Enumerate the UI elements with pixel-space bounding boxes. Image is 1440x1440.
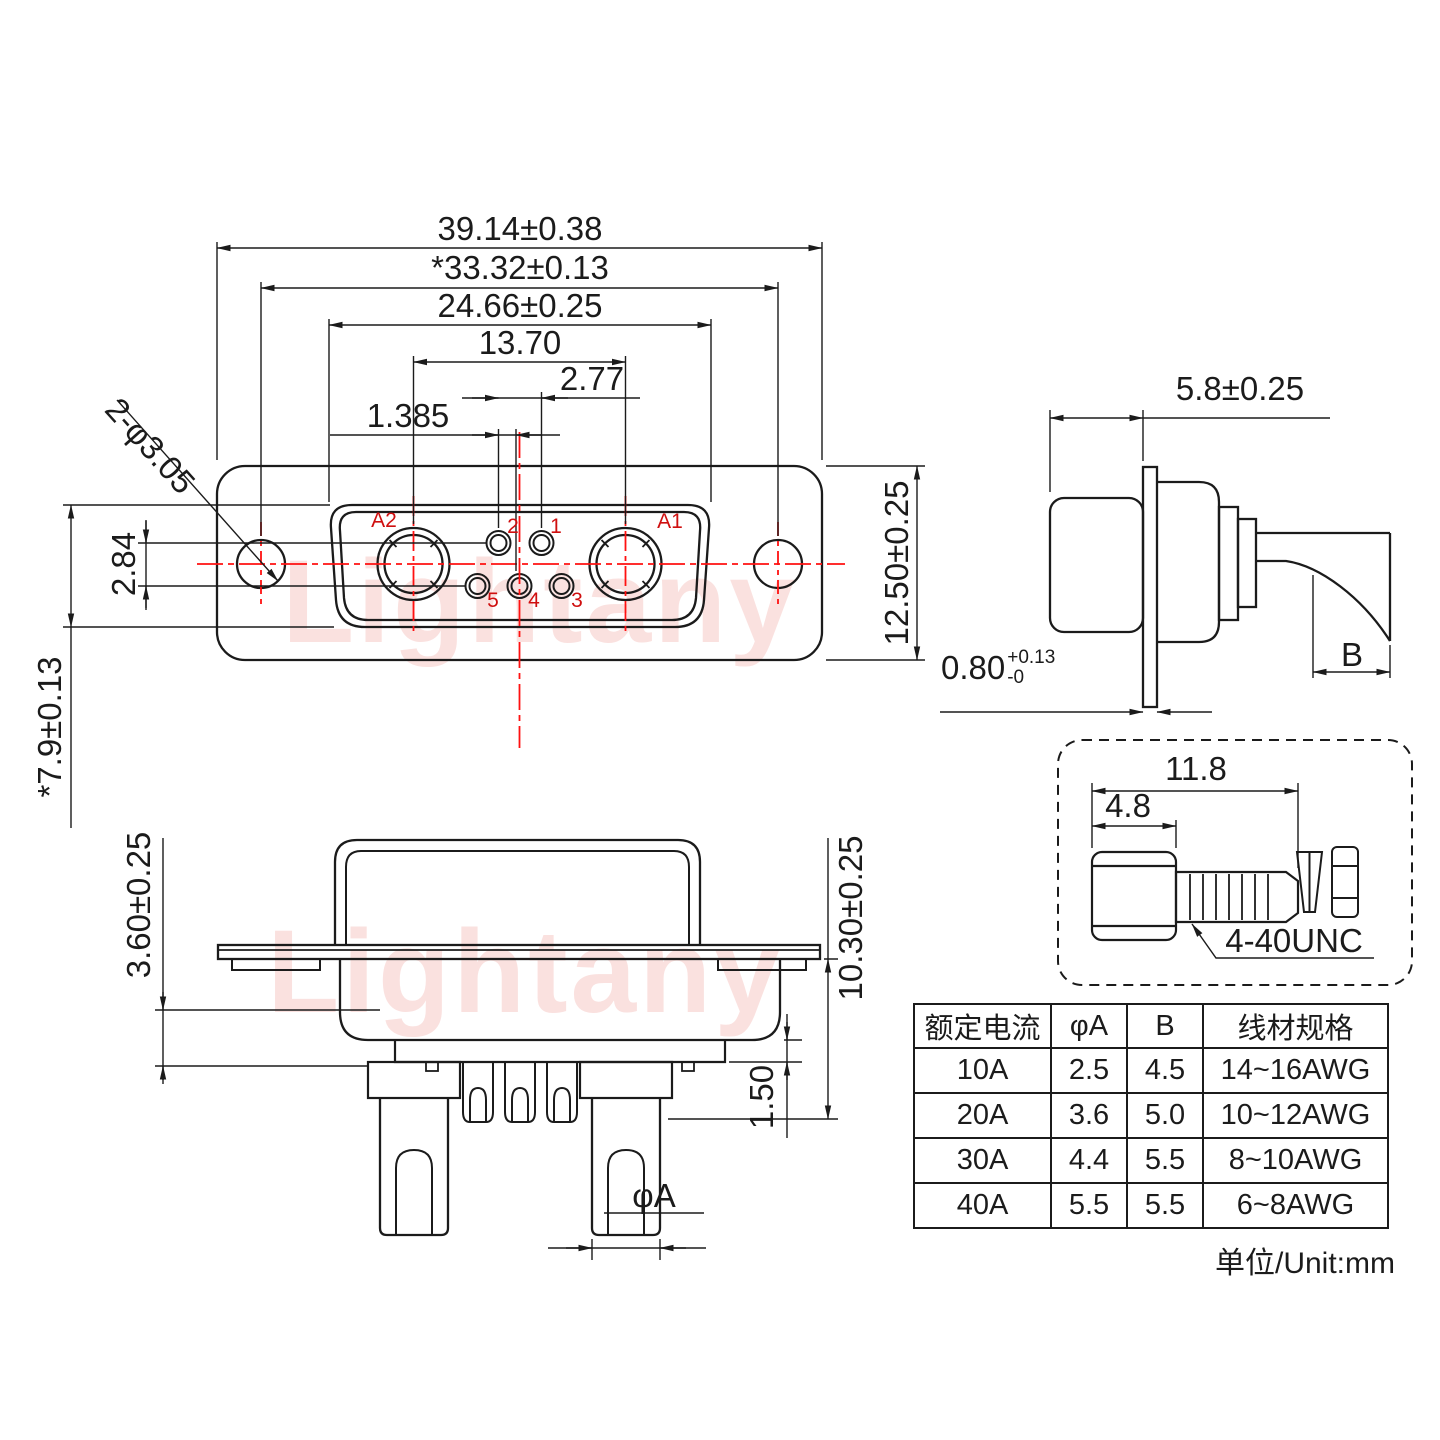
spec-cell: 4.5 (1127, 1048, 1203, 1093)
spec-header-phi-a: φA (1051, 1004, 1127, 1048)
unit-note: 单位/Unit:mm (1100, 1238, 1395, 1282)
pin-label-3: 3 (571, 589, 583, 613)
bottom-insulator-body (340, 959, 780, 1040)
pin-label-a1: A1 (657, 510, 683, 534)
solder-cup-left (368, 1062, 460, 1235)
dim-shell-height: *7.9±0.13 (31, 656, 69, 797)
dim-thread-spec: 4-40UNC (1225, 922, 1363, 960)
lock-wedge-part (1297, 852, 1322, 912)
spec-table-header-row: 额定电流 φA B 线材规格 (914, 1004, 1388, 1048)
spec-cell: 5.5 (1051, 1183, 1127, 1228)
spec-table: 额定电流 φA B 线材规格 10A 2.5 4.5 14~16AWG 20A … (913, 1003, 1389, 1229)
screw-thread-crests (1190, 874, 1268, 920)
front-view-centerlines (197, 432, 845, 748)
spec-cell: 3.6 (1051, 1093, 1127, 1138)
spec-cell: 10A (914, 1048, 1051, 1093)
spec-header-current: 额定电流 (914, 1004, 1051, 1048)
pin-label-5: 5 (487, 589, 499, 613)
side-shell-body (1050, 498, 1143, 632)
spec-header-b: B (1127, 1004, 1203, 1048)
dim-total-depth: 10.30±0.25 (832, 836, 870, 1001)
dim-power-pitch: 13.70 (479, 324, 562, 362)
dim-screw-head-length: 4.8 (1105, 787, 1151, 825)
spec-cell: 5.0 (1127, 1093, 1203, 1138)
bottom-view-dimensions (155, 838, 838, 1260)
side-flange-plate (1143, 467, 1157, 707)
dim-screw-total-length: 11.8 (1165, 750, 1227, 788)
dim-flange-thickness: 0.80 +0.13 -0 (941, 648, 1055, 688)
spec-cell: 4.4 (1051, 1138, 1127, 1183)
bottom-cap-inner (346, 851, 689, 945)
dim-signal-pitch: 2.77 (560, 360, 624, 398)
dim-shell-width: 24.66±0.25 (438, 287, 603, 325)
table-row: 40A 5.5 5.5 6~8AWG (914, 1183, 1388, 1228)
spec-cell: 30A (914, 1138, 1051, 1183)
table-row: 10A 2.5 4.5 14~16AWG (914, 1048, 1388, 1093)
dim-mount-span: *33.32±0.13 (431, 249, 609, 287)
bottom-view-linework (218, 840, 820, 1235)
dim-cup-diameter: φA (632, 1177, 675, 1215)
spec-cell: 40A (914, 1183, 1051, 1228)
bottom-flange-plate (218, 945, 820, 959)
spec-cell: 20A (914, 1093, 1051, 1138)
dim-insulator-depth: 3.60±0.25 (120, 832, 158, 979)
pin-label-a2: A2 (371, 509, 397, 533)
bottom-base-strip (395, 1040, 725, 1062)
screw-thread-outline (1176, 872, 1298, 922)
side-terminal (1256, 533, 1390, 641)
pin-label-1: 1 (550, 515, 562, 539)
spec-cell: 14~16AWG (1203, 1048, 1388, 1093)
lock-nut-part (1332, 847, 1358, 917)
spec-cell: 6~8AWG (1203, 1183, 1388, 1228)
spec-header-wire: 线材规格 (1203, 1004, 1388, 1048)
spec-cell: 5.5 (1127, 1138, 1203, 1183)
bottom-cap-outer (335, 840, 700, 945)
pin-label-2: 2 (507, 515, 519, 539)
side-view-linework (1050, 467, 1390, 707)
dim-flange-height: 12.50±0.25 (878, 481, 916, 646)
dim-tol-plus: +0.13 (1007, 648, 1055, 668)
spec-cell: 8~10AWG (1203, 1138, 1388, 1183)
dim-flange-thickness-value: 0.80 (941, 649, 1005, 687)
dim-side-depth: 5.8±0.25 (1176, 370, 1304, 408)
dim-tail-length: B (1341, 636, 1363, 674)
engineering-drawing-page: Lightany Lightany (0, 0, 1440, 1440)
table-row: 30A 4.4 5.5 8~10AWG (914, 1138, 1388, 1183)
pin-label-4: 4 (528, 589, 540, 613)
table-row: 20A 3.6 5.0 10~12AWG (914, 1093, 1388, 1138)
side-insulator (1157, 482, 1219, 642)
dim-signal-offset: 1.385 (367, 397, 450, 435)
spec-cell: 10~12AWG (1203, 1093, 1388, 1138)
signal-pin-tails (463, 1062, 577, 1122)
spec-cell: 5.5 (1127, 1183, 1203, 1228)
dim-tol-minus: -0 (1007, 668, 1055, 688)
dim-overall-width: 39.14±0.38 (438, 210, 603, 248)
dim-row-gap: 2.84 (105, 532, 143, 596)
spec-cell: 2.5 (1051, 1048, 1127, 1093)
dim-base-thickness: 1.50 (743, 1065, 781, 1129)
